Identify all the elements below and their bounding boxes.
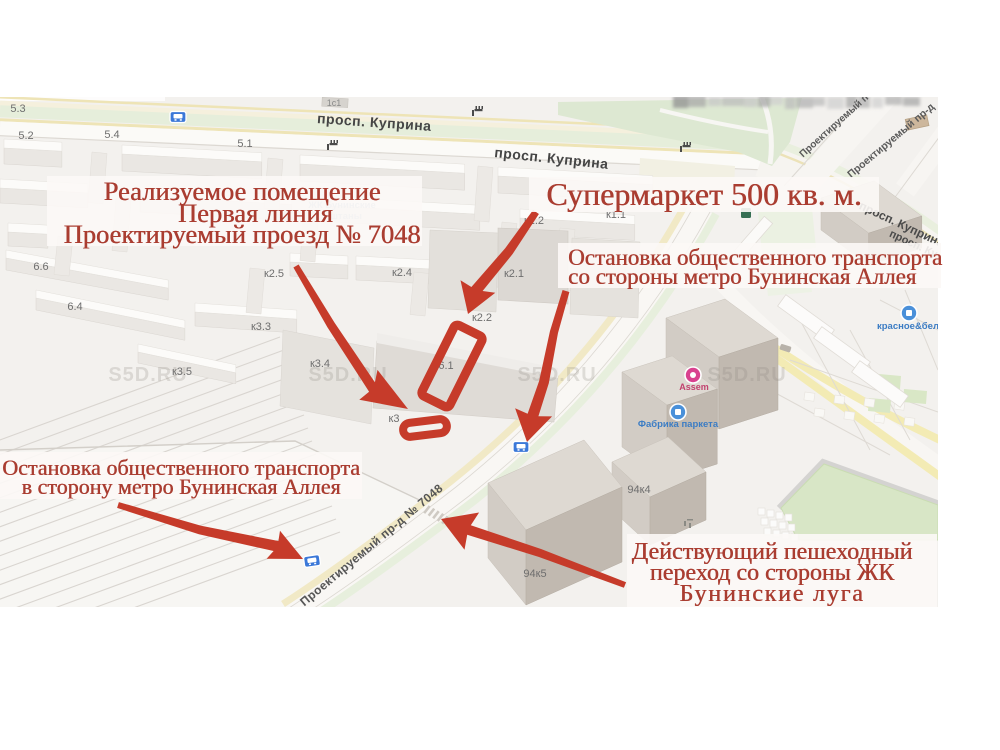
svg-text:Фабрика паркета: Фабрика паркета xyxy=(638,419,719,430)
svg-text:5.4: 5.4 xyxy=(104,129,119,141)
svg-text:5.2: 5.2 xyxy=(18,130,33,142)
svg-text:к2.5: к2.5 xyxy=(264,268,284,280)
svg-text:6.6: 6.6 xyxy=(33,261,48,273)
svg-text:к2.1: к2.1 xyxy=(504,268,524,280)
svg-text:S5D.RU: S5D.RU xyxy=(707,364,786,386)
svg-text:1с1: 1с1 xyxy=(327,98,342,108)
svg-text:к3: к3 xyxy=(389,413,400,425)
svg-text:Assem: Assem xyxy=(679,382,709,392)
svg-text:94к4: 94к4 xyxy=(627,484,650,496)
svg-text:красное&бел: красное&бел xyxy=(877,321,939,332)
svg-text:к2.4: к2.4 xyxy=(392,267,412,279)
svg-text:94к5: 94к5 xyxy=(523,568,546,580)
svg-text:S5D.RU: S5D.RU xyxy=(517,364,596,386)
svg-text:к3.3: к3.3 xyxy=(251,321,271,333)
svg-text:S5D.RU: S5D.RU xyxy=(108,364,187,386)
svg-text:5.1: 5.1 xyxy=(237,138,252,150)
svg-text:5.3: 5.3 xyxy=(10,103,25,115)
svg-text:6.4: 6.4 xyxy=(67,301,82,313)
svg-text:к2.2: к2.2 xyxy=(472,312,492,324)
